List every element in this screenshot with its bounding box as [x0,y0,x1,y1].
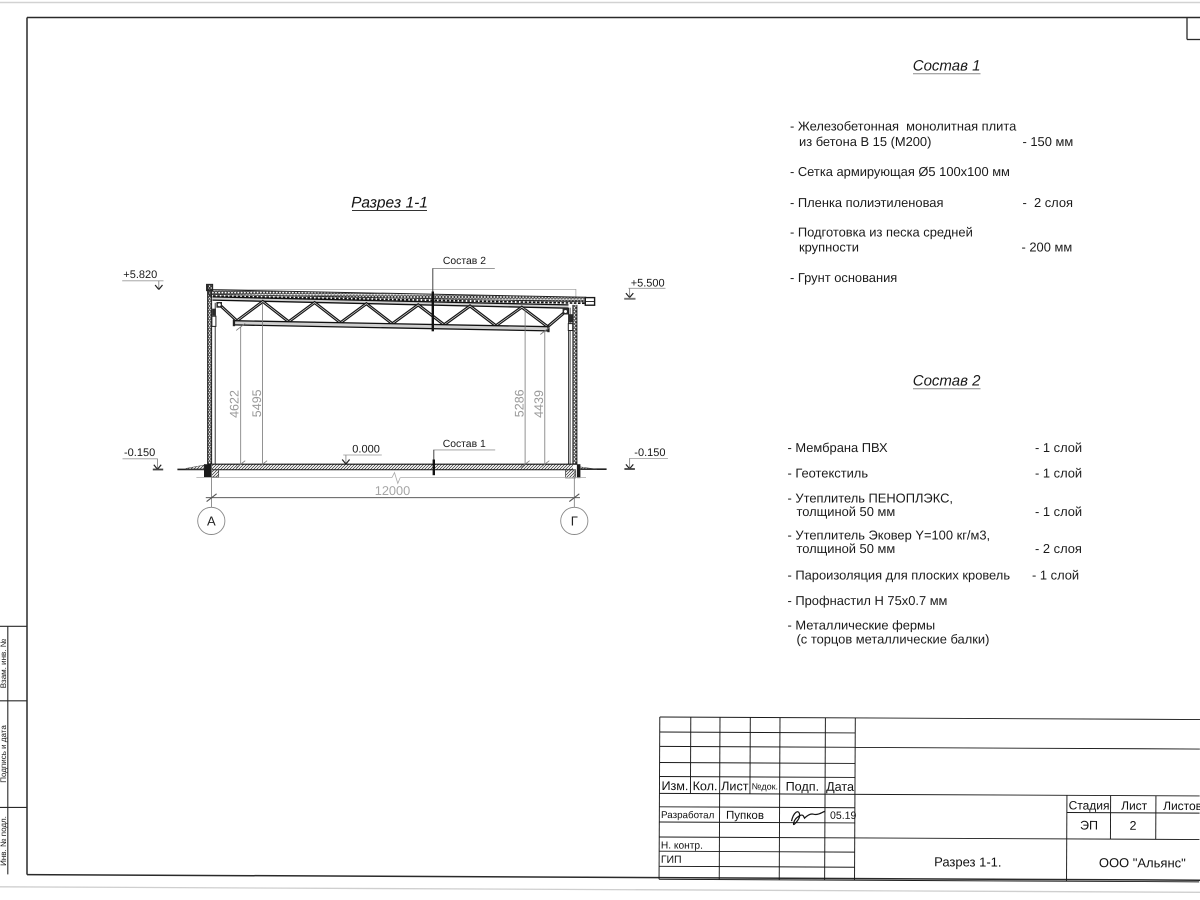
svg-text:- Профнастил Н 75х0.7 мм: - Профнастил Н 75х0.7 мм [788,593,948,608]
svg-text:- 1 слой: - 1 слой [1035,440,1082,455]
svg-text:толщиной 50 мм: толщиной 50 мм [797,504,896,519]
svg-text:крупности: крупности [799,240,859,255]
svg-text:4439: 4439 [532,390,546,418]
svg-text:- Пленка полиэтиленовая: - Пленка полиэтиленовая [790,195,943,210]
svg-text:05.19: 05.19 [830,810,856,822]
svg-text:-0.150: -0.150 [124,447,155,459]
svg-text:ГИП: ГИП [661,854,682,866]
svg-text:-0.150: -0.150 [634,447,665,459]
svg-text:- Сетка армирующая Ø5 100х100: - Сетка армирующая Ø5 100х100 мм [790,164,1010,179]
svg-text:Кол.: Кол. [693,779,718,793]
svg-text:- 1 слой: - 1 слой [1032,568,1079,583]
svg-text:Состав 1: Состав 1 [443,439,486,450]
svg-text:- Грунт основания: - Грунт основания [790,270,897,285]
svg-text:Разрез 1-1: Разрез 1-1 [351,195,428,212]
svg-text:№док.: №док. [752,781,778,791]
svg-text:- 150 мм: - 150 мм [1023,134,1074,149]
svg-text:Листов: Листов [1163,799,1200,813]
svg-text:- Мембрана ПВХ: - Мембрана ПВХ [788,440,889,455]
svg-text:ЭП: ЭП [1080,818,1098,832]
svg-text:+5.820: +5.820 [123,269,157,281]
svg-text:- Геотекстиль: - Геотекстиль [788,466,869,481]
svg-text:- Подготовка из песка средней: - Подготовка из песка средней [790,225,973,240]
svg-text:5286: 5286 [512,389,526,417]
svg-text:толщиной 50 мм: толщиной 50 мм [797,541,896,556]
svg-text:Инв. № подл.: Инв. № подл. [0,816,8,866]
svg-text:4622: 4622 [228,390,242,418]
svg-text:ООО "Альянс": ООО "Альянс" [1099,855,1186,870]
svg-text:Изм.: Изм. [661,779,688,793]
svg-text:- Железобетонная монолитная п: - Железобетонная монолитная плита [790,119,1017,134]
svg-text:+5.500: +5.500 [631,277,665,289]
svg-text:Дата: Дата [826,780,854,794]
svg-text:Стадия: Стадия [1069,798,1110,812]
svg-text:(с торцов металлические балки): (с торцов металлические балки) [797,632,990,647]
svg-text:Подпись и дата: Подпись и дата [0,725,8,783]
svg-text:- 2 слоя: - 2 слоя [1035,541,1082,556]
svg-text:Состав 2: Состав 2 [443,256,486,267]
svg-text:Н. контр.: Н. контр. [661,841,703,852]
svg-text:Взам. инв. №: Взам. инв. № [0,638,8,688]
svg-text:- 1 слой: - 1 слой [1035,466,1082,481]
svg-text:12000: 12000 [375,483,411,498]
svg-text:Состав 1: Состав 1 [913,58,981,75]
svg-text:- Металлические фермы: - Металлические фермы [788,618,936,633]
svg-text:Пупков: Пупков [726,810,764,822]
svg-text:Разрез 1-1.: Разрез 1-1. [934,854,1002,869]
svg-text:- Пароизоляция для плоских кро: - Пароизоляция для плоских кровель [788,568,1011,583]
svg-text:- 1 слой: - 1 слой [1035,504,1082,519]
svg-text:А: А [207,514,216,529]
svg-text:Лист: Лист [1121,799,1148,813]
svg-text:Разработал: Разработал [661,810,715,821]
svg-text:Состав 2: Состав 2 [913,373,981,390]
svg-text:5495: 5495 [250,389,264,417]
svg-text:- 200 мм: - 200 мм [1022,240,1073,255]
svg-text:0.000: 0.000 [352,443,380,455]
svg-text:- 2 слоя: - 2 слоя [1023,195,1073,210]
svg-text:Подп.: Подп. [786,780,820,794]
svg-text:Лист: Лист [721,779,749,793]
svg-text:2: 2 [1129,819,1136,833]
svg-text:Г: Г [571,514,578,529]
svg-text:из бетона В 15 (М200): из бетона В 15 (М200) [799,134,931,149]
